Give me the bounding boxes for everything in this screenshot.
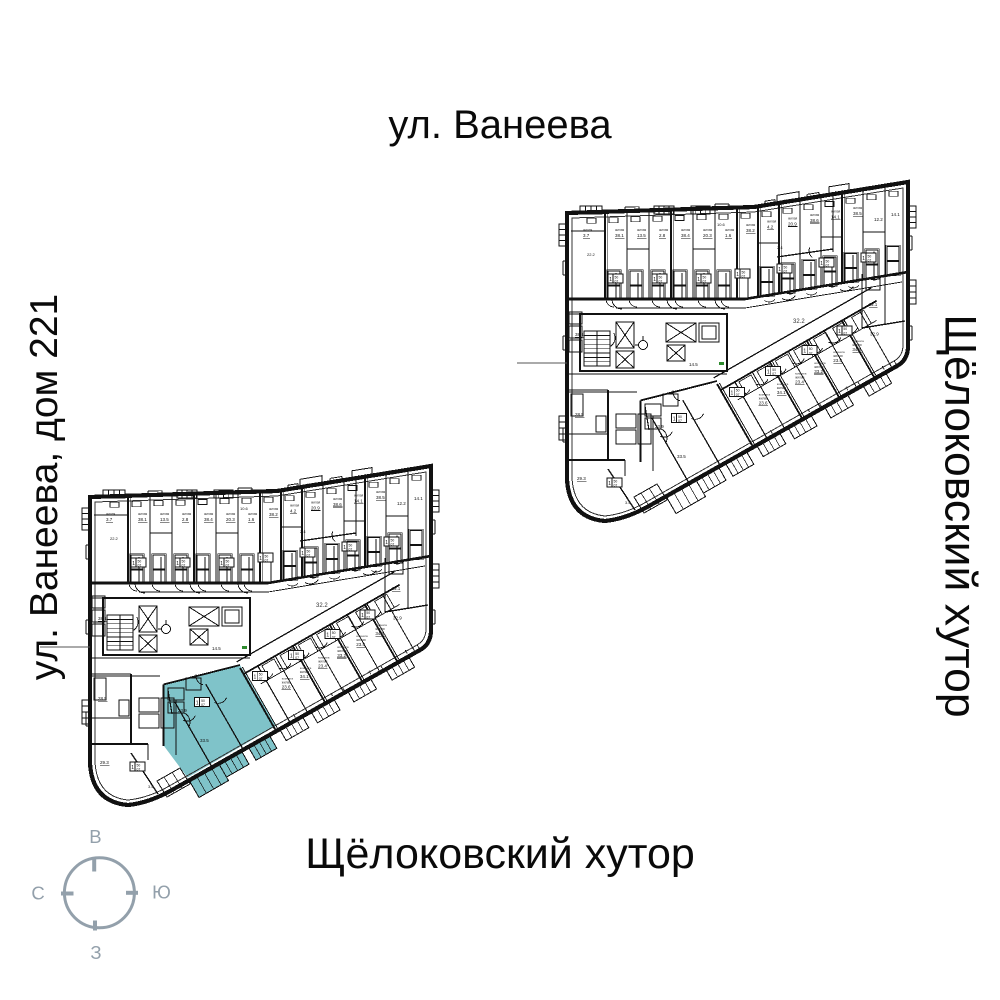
svg-text:В: В bbox=[89, 826, 101, 847]
svg-text:З: З bbox=[90, 942, 101, 963]
svg-text:ул. Ванеева, дом 221: ул. Ванеева, дом 221 bbox=[23, 294, 66, 681]
svg-text:Щёлоковский хутор: Щёлоковский хутор bbox=[305, 830, 695, 878]
svg-text:Щёлоковский хутор: Щёлоковский хутор bbox=[936, 314, 985, 717]
svg-text:С: С bbox=[31, 883, 44, 904]
svg-text:Ю: Ю bbox=[152, 882, 171, 903]
svg-text:ул. Ванеева: ул. Ванеева bbox=[388, 103, 612, 147]
